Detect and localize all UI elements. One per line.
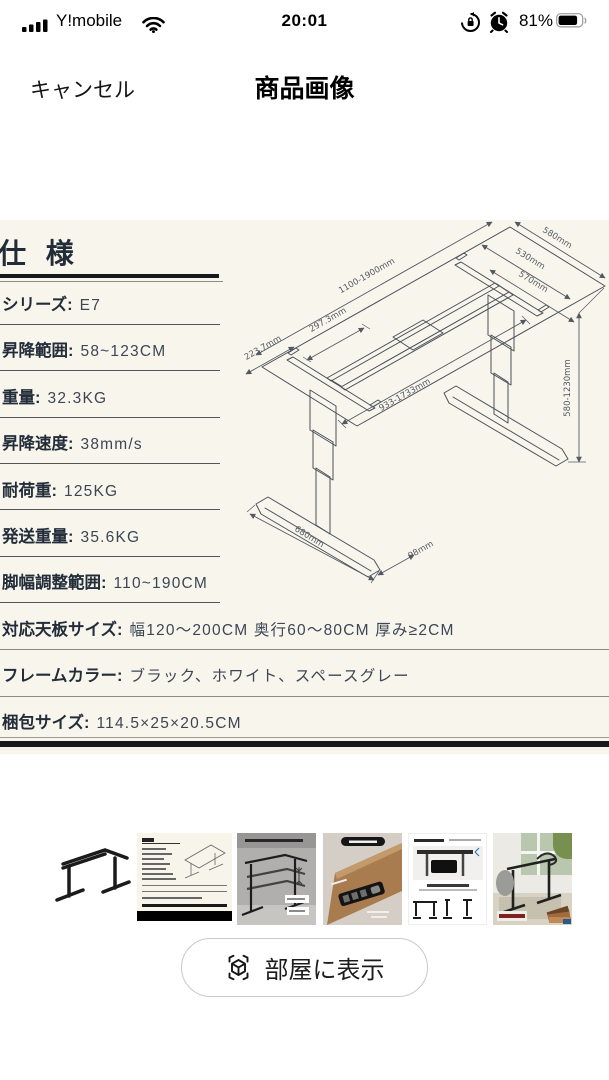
selected-thumbnail-indicator (137, 911, 232, 921)
divider (0, 324, 220, 325)
dim-bracket-length: 530mm (513, 246, 546, 272)
spec-row-lift-range: 昇降範囲:58~123CM (2, 337, 166, 361)
spec-heading: 仕 様 (0, 232, 80, 272)
heading-underline (0, 274, 219, 278)
dim-height-range: 580-1230mm (563, 359, 573, 416)
product-image-viewer: Y!mobile 20:01 81% キャンセル 商品画像 (0, 0, 609, 1080)
page-title: 商品画像 (0, 69, 609, 105)
view-in-room-button[interactable]: 部屋に表示 (181, 938, 428, 997)
battery-icon (556, 13, 587, 28)
thumbnail-height-adjust-photo[interactable] (237, 833, 316, 925)
thumbnail-room-scene-photo[interactable] (493, 833, 572, 925)
thumbnail-touch-panel-photo[interactable] (323, 833, 402, 925)
spec-row-load: 耐荷重:125KG (2, 477, 118, 501)
spec-row-frame-color: フレームカラー:ブラック、ホワイト、スペースグレー (2, 662, 410, 686)
alarm-icon (488, 11, 510, 33)
divider (0, 556, 220, 557)
rotation-lock-icon (460, 12, 481, 33)
spec-row-leg-width: 脚幅調整範囲:110~190CM (2, 569, 208, 593)
spec-row-series: シリーズ:E7 (2, 291, 101, 315)
divider (0, 602, 220, 603)
status-bar: Y!mobile 20:01 81% (0, 0, 609, 44)
divider-full (0, 649, 609, 650)
dim-beam-inset: 297.3mm (308, 306, 349, 335)
spec-row-package-size: 梱包サイズ:114.5×25×20.5CM (2, 709, 242, 733)
spec-row-top-size: 対応天板サイズ:幅120〜200CM 奥行60〜80CM 厚み≥2CM (2, 616, 455, 640)
divider (0, 417, 220, 418)
dim-crossbar-length: 570mm (516, 269, 549, 295)
spec-row-weight: 重量:32.3KG (2, 384, 107, 408)
dim-rail-range: 933-1733mm (378, 377, 433, 414)
view-in-room-label: 部屋に表示 (265, 950, 385, 985)
divider-full (0, 696, 609, 697)
clock: 20:01 (0, 11, 609, 31)
divider (0, 370, 220, 371)
heading-underline-thin (0, 281, 223, 282)
dim-top-length: 1100-1900mm (337, 256, 397, 296)
divider (0, 509, 220, 510)
thumbnail-spec-sheet[interactable] (137, 833, 232, 911)
bottom-rule-thin (0, 737, 609, 738)
spec-row-speed: 昇降速度:38mm/s (2, 430, 143, 454)
ar-cube-icon (225, 954, 252, 981)
bottom-rule-thick (0, 741, 609, 747)
thumbnail-frame-photo[interactable] (53, 838, 135, 914)
dim-foot-width: 98mm (407, 539, 436, 561)
battery-percent: 81% (519, 11, 553, 31)
divider (0, 463, 220, 464)
dim-top-depth: 580mm (540, 225, 573, 251)
thumbnail-dual-motor-diagram[interactable] (408, 833, 487, 925)
spec-row-ship-weight: 発送重量:35.6KG (2, 523, 140, 547)
desk-frame-drawing: 1100-1900mm 297.3mm 223.7mm 580mm 530mm … (230, 218, 609, 610)
